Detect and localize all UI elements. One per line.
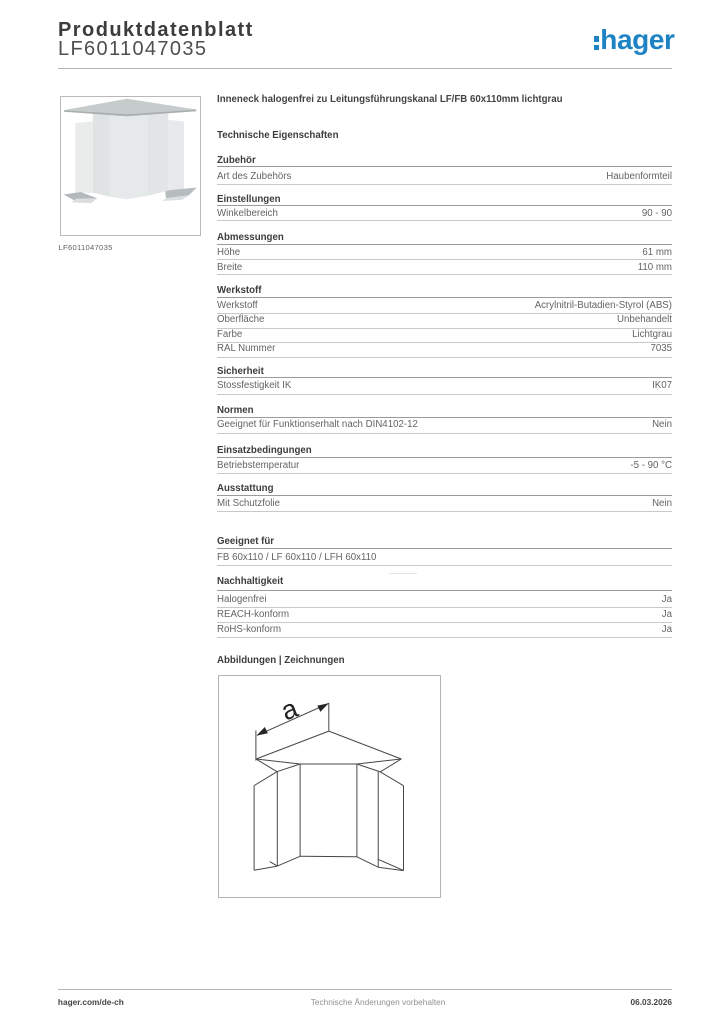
svg-text:a: a xyxy=(277,693,303,727)
